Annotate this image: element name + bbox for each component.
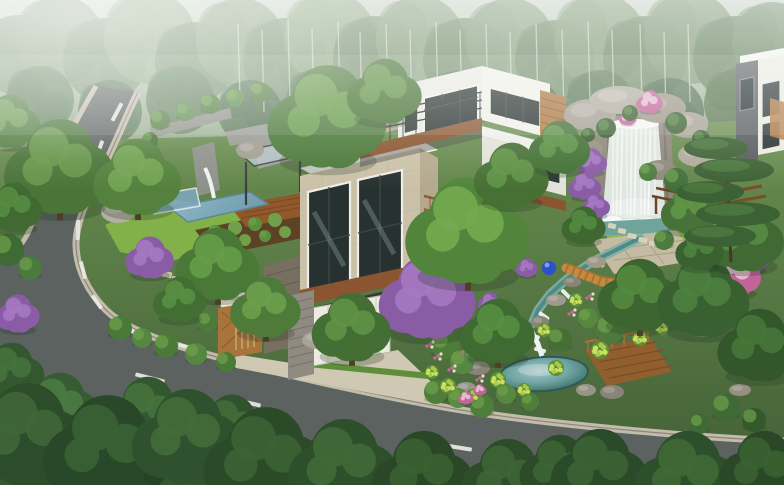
small-flower <box>461 350 464 353</box>
small-flower <box>438 357 441 360</box>
tree-highlight <box>162 294 176 308</box>
purple-tree-highlight <box>3 309 15 321</box>
flower-dot <box>554 361 559 366</box>
flower-dot <box>526 390 530 394</box>
foreground-tree-highlight <box>11 357 31 377</box>
foreground-tree-highlight <box>65 438 100 473</box>
bush-highlight <box>579 309 590 320</box>
bush-highlight <box>217 353 228 364</box>
tree-highlight <box>351 310 375 334</box>
small-flower <box>572 313 575 316</box>
bush-highlight <box>249 218 257 226</box>
small-flower <box>573 308 576 311</box>
flower-dot <box>642 338 647 343</box>
small-flower <box>452 369 455 372</box>
rock-highlight <box>565 278 574 283</box>
flower-dot <box>602 350 607 355</box>
flower-dot <box>434 372 438 376</box>
rock-highlight <box>732 386 743 391</box>
flower-dot <box>518 389 522 393</box>
blue-garden-object <box>542 261 556 275</box>
small-flower <box>453 364 456 367</box>
bush-highlight <box>425 381 438 394</box>
tree-highlight <box>583 216 597 230</box>
small-flower <box>481 374 484 377</box>
flower-dot <box>546 330 550 334</box>
small-flower <box>447 368 450 371</box>
foreground-tree-highlight <box>734 460 758 484</box>
waterfall-mist <box>608 198 660 218</box>
small-flower <box>430 345 433 348</box>
blue-object-highlight <box>545 263 550 268</box>
rock-highlight <box>459 384 469 389</box>
bush-highlight <box>269 214 277 222</box>
flower-dot <box>474 396 478 400</box>
tree-highlight <box>242 300 261 319</box>
bush-highlight <box>186 344 198 356</box>
small-flower <box>433 356 436 359</box>
purple-tree-highlight <box>595 200 604 209</box>
purple-tree-highlight <box>17 304 31 318</box>
scene-canvas <box>0 0 784 485</box>
rock-highlight <box>533 318 542 323</box>
small-flower <box>585 296 588 299</box>
flower-dot <box>578 300 582 304</box>
flower-dot <box>543 324 547 328</box>
small-flower <box>590 297 593 300</box>
foreground-tree-highlight <box>224 448 258 482</box>
tree-highlight <box>190 256 213 279</box>
tree-highlight <box>216 246 242 272</box>
bush-highlight <box>133 329 144 340</box>
pine-layer-highlight <box>691 227 734 238</box>
blossom-tree-highlight <box>461 396 465 400</box>
flower-dot <box>446 379 451 384</box>
flower-dot <box>575 294 579 298</box>
rock-highlight <box>579 386 589 391</box>
foreground-tree-highlight <box>598 450 628 480</box>
small-flower <box>570 310 573 313</box>
bush-highlight <box>229 222 237 230</box>
tree-highlight <box>702 277 731 306</box>
flower-dot <box>500 380 505 385</box>
flower-dot <box>592 349 597 354</box>
foreground-tree-highlight <box>186 414 220 448</box>
rock-highlight <box>589 258 599 263</box>
rock-highlight <box>603 387 615 393</box>
flower-dot <box>633 337 638 342</box>
blossom-tree-highlight <box>466 395 471 400</box>
small-flower <box>475 378 478 381</box>
tree-highlight <box>13 195 31 213</box>
lane-marking <box>76 220 81 240</box>
flower-dot <box>450 386 455 391</box>
flower-dot <box>523 384 527 388</box>
purple-tree-highlight <box>395 287 421 313</box>
foreground-tree-highlight <box>422 453 453 484</box>
tree-highlight <box>325 319 347 341</box>
foreground-tree-highlight <box>151 426 181 456</box>
small-flower <box>588 294 591 297</box>
foreground-tree-highlight <box>342 444 376 478</box>
tree-highlight <box>671 204 687 220</box>
pine-layer-highlight <box>704 204 754 216</box>
purple-tree-highlight <box>134 253 147 266</box>
rock-highlight <box>549 296 559 301</box>
small-flower <box>425 344 428 347</box>
flower-dot <box>538 329 542 333</box>
tree-highlight <box>612 287 635 310</box>
purple-tree-highlight <box>149 247 164 262</box>
small-flower <box>439 352 442 355</box>
tree-highlight <box>265 292 287 314</box>
flower-dot <box>570 299 574 303</box>
tree-highlight <box>179 288 195 304</box>
tree-highlight <box>684 245 697 258</box>
small-flower <box>478 376 481 379</box>
bush-highlight <box>713 395 728 410</box>
architectural-rendering <box>0 0 784 485</box>
blossom-tree-highlight <box>480 387 484 391</box>
haze-band <box>0 55 784 135</box>
tree-highlight <box>473 324 493 344</box>
bush-highlight <box>549 329 562 342</box>
tree-highlight <box>732 337 755 360</box>
blossom-tree-highlight <box>476 389 480 393</box>
tree-highlight <box>673 288 698 313</box>
flower-dot <box>558 368 563 373</box>
bush-highlight <box>691 415 702 426</box>
purple-tree-highlight <box>520 266 526 272</box>
flower-dot <box>549 367 554 372</box>
flower-dot <box>491 379 496 384</box>
small-flower <box>450 366 453 369</box>
tree-highlight <box>426 218 460 252</box>
foreground-tree-highlight <box>307 456 337 485</box>
bush-highlight <box>19 257 32 270</box>
tree-highlight <box>758 327 784 353</box>
flower-dot <box>441 385 446 390</box>
bush-highlight <box>280 227 287 234</box>
flower-dot <box>431 366 435 370</box>
purple-tree-highlight <box>527 263 534 270</box>
bush-highlight <box>743 409 756 422</box>
flower-dot <box>598 342 603 347</box>
tree-highlight <box>569 221 581 233</box>
tree-highlight <box>497 315 520 338</box>
bush-highlight <box>240 235 247 242</box>
bush-highlight <box>109 317 122 330</box>
small-flower <box>436 354 439 357</box>
bush-highlight <box>155 335 168 348</box>
bush-highlight <box>655 231 666 242</box>
small-flower <box>567 312 570 315</box>
flower-dot <box>426 371 430 375</box>
bush-highlight <box>260 231 267 238</box>
small-flower <box>480 379 483 382</box>
small-flower <box>591 292 594 295</box>
flower-dot <box>496 373 501 378</box>
